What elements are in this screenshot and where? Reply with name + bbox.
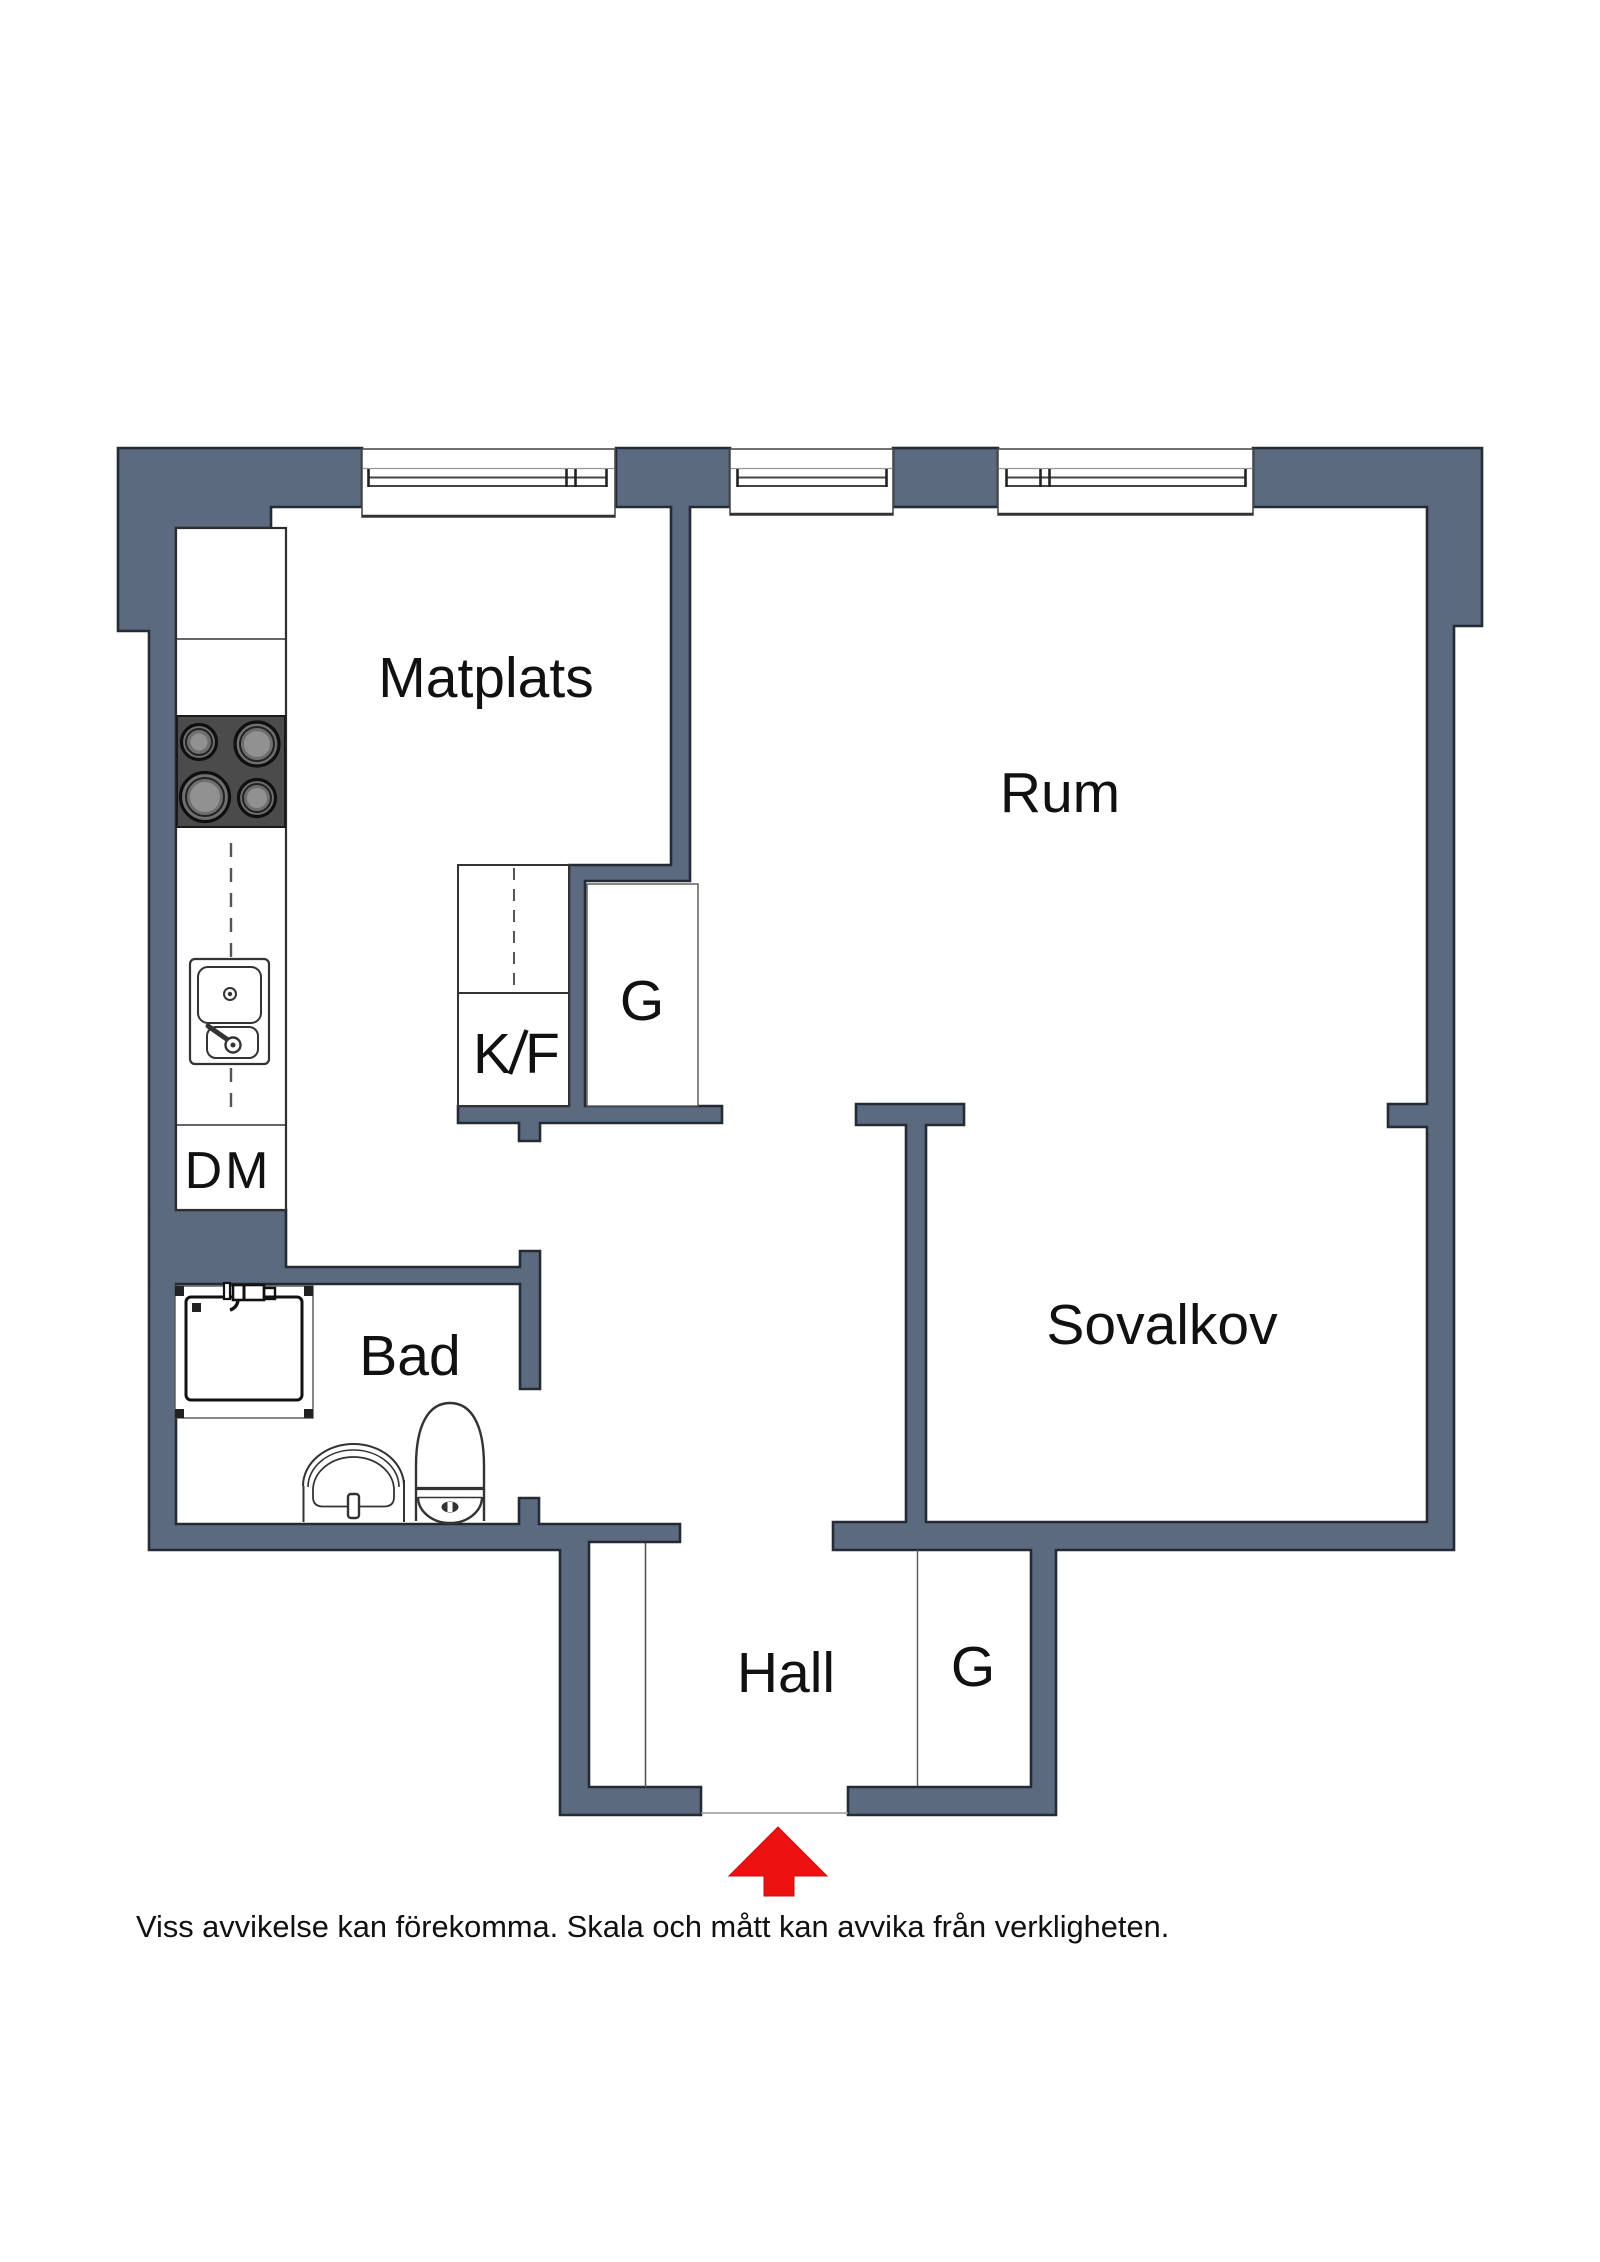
- svg-text:Hall: Hall: [737, 1641, 835, 1705]
- svg-text:Rum: Rum: [1000, 761, 1120, 825]
- svg-text:Viss avvikelse kan förekomma.: Viss avvikelse kan förekomma. Skala och …: [136, 1909, 1169, 1944]
- svg-text:G: G: [620, 969, 664, 1033]
- svg-text:DM: DM: [185, 1142, 272, 1200]
- svg-text:Bad: Bad: [359, 1324, 460, 1388]
- svg-text:K: K: [473, 1022, 511, 1086]
- svg-text:F: F: [525, 1022, 560, 1086]
- svg-text:G: G: [951, 1635, 995, 1699]
- svg-text:Matplats: Matplats: [378, 646, 593, 710]
- svg-text:Sovalkov: Sovalkov: [1046, 1293, 1278, 1357]
